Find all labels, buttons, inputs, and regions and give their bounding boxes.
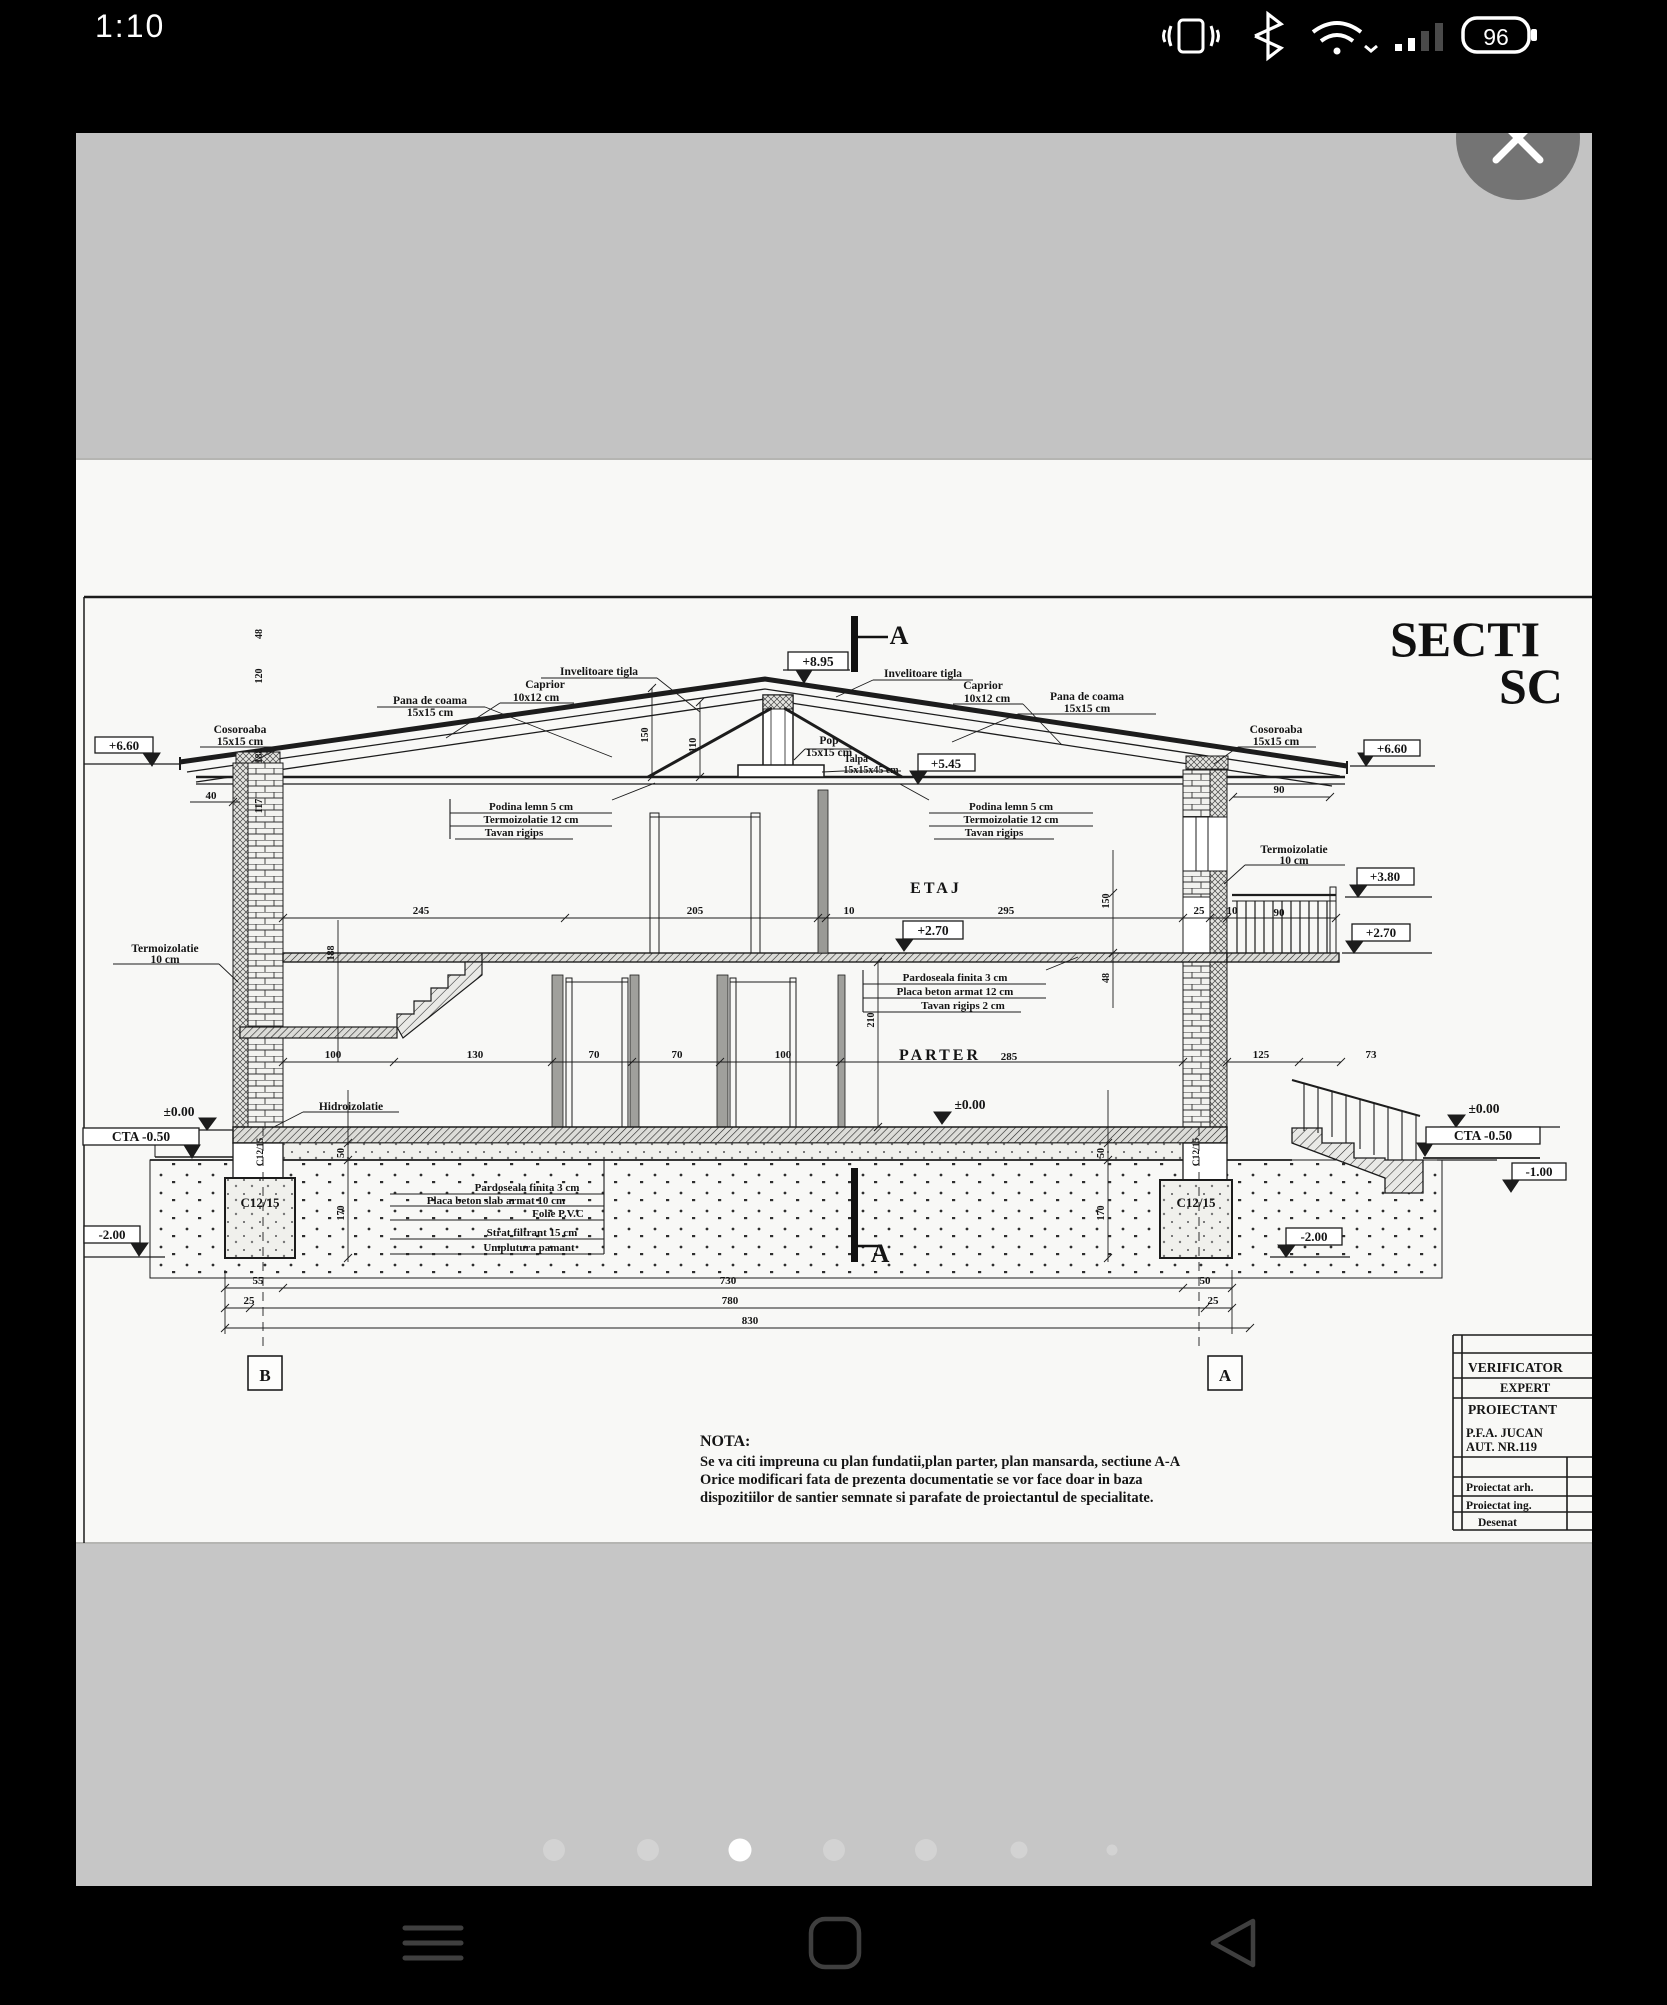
svg-text:40: 40 [206,790,218,802]
svg-text:188: 188 [254,749,265,764]
svg-text:Pardoseala finita 3 cm: Pardoseala finita 3 cm [903,972,1008,984]
battery-icon: 96 [1463,18,1537,52]
svg-text:Proiectat arh.: Proiectat arh. [1466,1482,1534,1494]
svg-text:25: 25 [244,1295,256,1307]
svg-text:VERIFICATOR: VERIFICATOR [1468,1360,1563,1375]
svg-text:+2.70: +2.70 [917,923,949,938]
svg-text:C12/15: C12/15 [1192,1138,1202,1167]
svg-text:110: 110 [688,738,699,752]
svg-text:Umplutura pamant: Umplutura pamant [483,1242,575,1254]
svg-text:15x15 cm: 15x15 cm [217,736,264,748]
svg-text:15x15 cm: 15x15 cm [1253,736,1300,748]
svg-text:48: 48 [254,629,265,639]
svg-text:50: 50 [336,1148,347,1158]
svg-text:-1.00: -1.00 [1525,1164,1552,1179]
svg-text:130: 130 [467,1049,484,1061]
svg-text:±0.00: ±0.00 [954,1097,985,1112]
page-dot[interactable] [915,1839,937,1861]
wifi-icon [1313,23,1377,55]
svg-text:Termoizolatie 12 cm: Termoizolatie 12 cm [964,814,1059,826]
svg-text:Proiectat ing.: Proiectat ing. [1466,1500,1532,1512]
svg-text:Caprior: Caprior [525,679,565,691]
page-dot[interactable] [823,1839,845,1861]
photo-bottom-band [76,1543,1592,1886]
signal-icon [1395,23,1443,51]
svg-text:205: 205 [687,905,704,917]
svg-text:±0.00: ±0.00 [1468,1101,1499,1116]
svg-text:25: 25 [1208,1295,1220,1307]
svg-text:A: A [871,1239,890,1268]
page-dot[interactable] [637,1839,659,1861]
svg-text:Invelitoare tigla: Invelitoare tigla [884,668,962,680]
svg-text:A: A [1219,1366,1232,1385]
svg-text:+3.80: +3.80 [1370,869,1400,884]
svg-text:Strat filtrant 15 cm: Strat filtrant 15 cm [487,1227,578,1239]
svg-text:Cosoroaba: Cosoroaba [1250,724,1303,736]
svg-text:10: 10 [844,905,856,917]
svg-text:55: 55 [253,1275,265,1287]
svg-text:Folie P.V.C: Folie P.V.C [532,1208,584,1220]
svg-text:EXPERT: EXPERT [1500,1381,1551,1395]
svg-text:+5.45: +5.45 [931,756,962,771]
svg-text:Pana de coama: Pana de coama [393,695,467,707]
status-icons: 96 [1127,6,1547,66]
svg-text:50: 50 [1096,1148,1107,1158]
document-photo: SECTI SC [76,133,1592,1886]
svg-text:295: 295 [998,905,1015,917]
page-dot-active[interactable] [729,1839,752,1862]
svg-text:15x15x45 cm: 15x15x45 cm [843,765,899,776]
svg-text:285: 285 [1001,1051,1018,1063]
svg-text:Termoizolatie 12 cm: Termoizolatie 12 cm [484,814,579,826]
svg-text:-2.00: -2.00 [98,1227,125,1242]
svg-text:Pardoseala finita 3 cm: Pardoseala finita 3 cm [475,1182,580,1194]
note-heading: NOTA: [700,1433,750,1450]
svg-text:P.F.A. JUCAN: P.F.A. JUCAN [1466,1426,1543,1440]
svg-text:+6.60: +6.60 [1377,741,1407,756]
svg-text:730: 730 [720,1275,737,1287]
svg-text:CTA -0.50: CTA -0.50 [1454,1128,1513,1143]
svg-text:210: 210 [866,1013,877,1028]
svg-text:+8.95: +8.95 [802,654,834,669]
svg-text:A: A [890,621,909,650]
svg-text:117: 117 [254,799,265,813]
back-button[interactable]: back-icon [1213,1921,1253,1965]
svg-text:-2.00: -2.00 [1300,1229,1327,1244]
svg-text:dispozitiilor de santier semna: dispozitiilor de santier semnate si para… [700,1490,1154,1506]
svg-text:70: 70 [672,1049,684,1061]
svg-text:PROIECTANT: PROIECTANT [1468,1402,1557,1417]
home-button[interactable]: home-icon [811,1919,859,1967]
svg-text:C12/15: C12/15 [241,1195,281,1210]
svg-text:73: 73 [1366,1049,1378,1061]
svg-text:ETAJ: ETAJ [910,880,962,897]
page-dot[interactable] [1011,1842,1028,1859]
status-bar: 1:10 96 [0,0,1667,76]
vibrate-icon [1164,20,1219,52]
svg-text:100: 100 [775,1049,792,1061]
svg-text:150: 150 [1101,894,1112,909]
page-dot[interactable] [543,1839,565,1861]
svg-text:Tavan rigips: Tavan rigips [485,827,544,839]
svg-text:188: 188 [326,946,337,961]
svg-text:±0.00: ±0.00 [163,1104,194,1119]
svg-text:Desenat: Desenat [1478,1517,1517,1529]
svg-text:Tavan rigips: Tavan rigips [965,827,1024,839]
menu-button[interactable]: hamburger-icon [405,1928,461,1958]
svg-text:10 cm: 10 cm [1279,855,1308,867]
svg-text:10: 10 [1227,905,1239,917]
svg-text:10 cm: 10 cm [150,954,179,966]
svg-text:Placa beton slab armat 10 cm: Placa beton slab armat 10 cm [427,1195,565,1207]
svg-text:70: 70 [589,1049,601,1061]
android-nav-bar: hamburger-icon home-icon back-icon [0,1886,1667,2000]
svg-text:Podina lemn 5 cm: Podina lemn 5 cm [489,801,573,813]
svg-text:CTA -0.50: CTA -0.50 [112,1129,171,1144]
svg-text:Hidroizolatie: Hidroizolatie [319,1101,383,1113]
svg-text:150: 150 [640,728,651,743]
bluetooth-icon [1255,14,1281,58]
svg-text:15x15 cm: 15x15 cm [407,707,454,719]
svg-text:170: 170 [1096,1206,1107,1221]
svg-text:Cosoroaba: Cosoroaba [214,724,267,736]
svg-text:Tavan rigips 2 cm: Tavan rigips 2 cm [921,1000,1005,1012]
svg-text:+6.60: +6.60 [109,738,139,753]
svg-text:10x12 cm: 10x12 cm [513,692,560,704]
svg-text:90: 90 [1274,784,1286,796]
photo-top-band [76,133,1592,459]
page-dot[interactable] [1107,1845,1118,1856]
svg-text:90: 90 [1274,907,1286,919]
svg-text:830: 830 [742,1315,759,1327]
svg-text:10x12 cm: 10x12 cm [964,693,1011,705]
svg-text:Caprior: Caprior [963,680,1003,692]
svg-text:Pop: Pop [819,735,838,747]
sheet-scale: SC [1499,658,1563,714]
svg-text:Talpa: Talpa [844,754,868,765]
battery-level: 96 [1483,24,1509,50]
svg-text:PARTER: PARTER [899,1047,981,1064]
svg-text:125: 125 [1253,1049,1270,1061]
svg-text:50: 50 [1200,1275,1212,1287]
svg-text:Se va citi impreuna cu plan fu: Se va citi impreuna cu plan fundatii,pla… [700,1454,1181,1470]
svg-text:25: 25 [1194,905,1206,917]
svg-text:Pana de coama: Pana de coama [1050,691,1124,703]
svg-text:Invelitoare tigla: Invelitoare tigla [560,666,638,678]
svg-text:C12/15: C12/15 [256,1138,266,1167]
svg-text:B: B [259,1366,270,1385]
svg-text:780: 780 [722,1295,739,1307]
paper [76,459,1592,1543]
svg-text:Orice modificari fata de preze: Orice modificari fata de prezenta docume… [700,1472,1143,1488]
svg-text:100: 100 [325,1049,342,1061]
svg-text:48: 48 [1101,973,1112,983]
svg-text:120: 120 [254,669,265,684]
svg-text:Placa beton armat 12 cm: Placa beton armat 12 cm [897,986,1014,998]
svg-text:+2.70: +2.70 [1366,925,1396,940]
svg-text:170: 170 [336,1206,347,1221]
svg-text:Podina lemn 5 cm: Podina lemn 5 cm [969,801,1053,813]
svg-text:AUT. NR.119: AUT. NR.119 [1466,1440,1537,1454]
svg-text:245: 245 [413,905,430,917]
clock: 1:10 [95,8,165,45]
svg-text:C12/15: C12/15 [1177,1195,1217,1210]
svg-text:15x15 cm: 15x15 cm [1064,703,1111,715]
